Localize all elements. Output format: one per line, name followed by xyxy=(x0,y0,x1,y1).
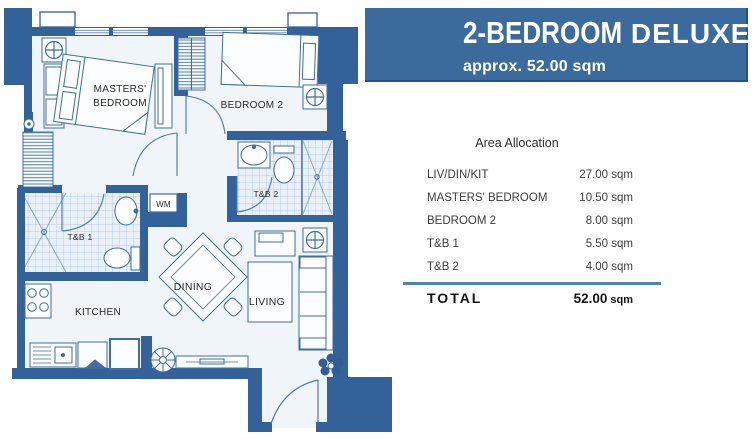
floor-plan-page: MASTERS' BEDROOM BEDROOM 2 T&B 2 T&B 1 W… xyxy=(0,0,754,439)
bedroom2-fan-icon xyxy=(303,85,327,109)
living-rug xyxy=(248,262,292,322)
label-dining: DINING xyxy=(174,281,213,293)
title-banner: 2-BEDROOM DELUXE approx. 52.00 sqm xyxy=(365,8,748,82)
table-row: T&B 1 5.50 sqm xyxy=(403,233,661,256)
label-wm: WM xyxy=(156,200,171,209)
exhaust-fan-icon xyxy=(151,348,175,372)
row-value: 10.50 sqm xyxy=(579,187,633,210)
row-label: MASTERS' BEDROOM xyxy=(427,187,547,210)
label-bedroom2: BEDROOM 2 xyxy=(221,100,284,111)
row-value: 4.00 sqm xyxy=(586,256,633,279)
total-value: 52.00sqm xyxy=(574,290,633,308)
label-living: LIVING xyxy=(249,296,285,308)
row-label: BEDROOM 2 xyxy=(427,210,496,233)
banner-subtitle: approx. 52.00 sqm xyxy=(463,58,746,76)
table-row: BEDROOM 2 8.00 sqm xyxy=(403,210,661,233)
label-kitchen: KITCHEN xyxy=(75,307,121,318)
banner-title-primary: 2-BEDROOM xyxy=(463,17,622,49)
total-row: TOTAL 52.00sqm xyxy=(403,285,661,308)
table-row: LIV/DIN/KIT 27.00 sqm xyxy=(403,164,661,187)
wall-fixture-icon xyxy=(24,119,34,129)
tv-console xyxy=(176,356,248,368)
window-masters xyxy=(75,28,148,35)
kitchen-sink xyxy=(30,343,76,367)
total-unit: sqm xyxy=(610,294,633,306)
row-value: 27.00 sqm xyxy=(579,164,633,187)
dining-table xyxy=(159,233,247,321)
total-label: TOTAL xyxy=(427,290,482,306)
side-cabinet xyxy=(255,231,295,256)
row-value: 5.50 sqm xyxy=(586,233,633,256)
table-row: T&B 2 4.00 sqm xyxy=(403,256,661,279)
label-masters-line2: BEDROOM xyxy=(93,98,147,109)
area-table-rows: LIV/DIN/KIT 27.00 sqm MASTERS' BEDROOM 1… xyxy=(403,164,661,279)
banner-title-secondary: DELUXE xyxy=(631,18,751,50)
sofa xyxy=(299,256,333,350)
kitchen-counter-unit xyxy=(78,342,107,368)
banner-title: 2-BEDROOM DELUXE xyxy=(463,17,746,55)
row-label: T&B 1 xyxy=(427,233,459,256)
label-masters-line1: MASTERS' xyxy=(94,84,147,95)
ac-ledge-right xyxy=(288,13,317,27)
row-label: LIV/DIN/KIT xyxy=(427,164,488,187)
stove xyxy=(25,284,51,318)
ac-ledge-left xyxy=(40,12,75,27)
area-table-title: Area Allocation xyxy=(403,136,661,150)
floor-plan: MASTERS' BEDROOM BEDROOM 2 T&B 2 T&B 1 W… xyxy=(0,0,400,439)
utility-shaft xyxy=(23,132,53,187)
bedroom2-bed xyxy=(221,32,319,87)
label-tb2: T&B 2 xyxy=(253,189,278,199)
masters-cabinet xyxy=(155,64,172,128)
table-row: MASTERS' BEDROOM 10.50 sqm xyxy=(403,187,661,210)
tb2-sink xyxy=(238,142,270,168)
tb2-toilet xyxy=(274,146,294,183)
area-allocation-table: Area Allocation LIV/DIN/KIT 27.00 sqm MA… xyxy=(403,136,661,308)
tb1-toilet xyxy=(104,247,140,270)
row-label: T&B 2 xyxy=(427,256,459,279)
bedroom2-closet xyxy=(178,38,205,90)
living-fan-icon xyxy=(303,228,327,252)
refrigerator xyxy=(110,339,139,369)
label-tb1: T&B 1 xyxy=(67,232,92,242)
row-value: 8.00 sqm xyxy=(586,210,633,233)
total-number: 52.00 xyxy=(574,291,608,306)
